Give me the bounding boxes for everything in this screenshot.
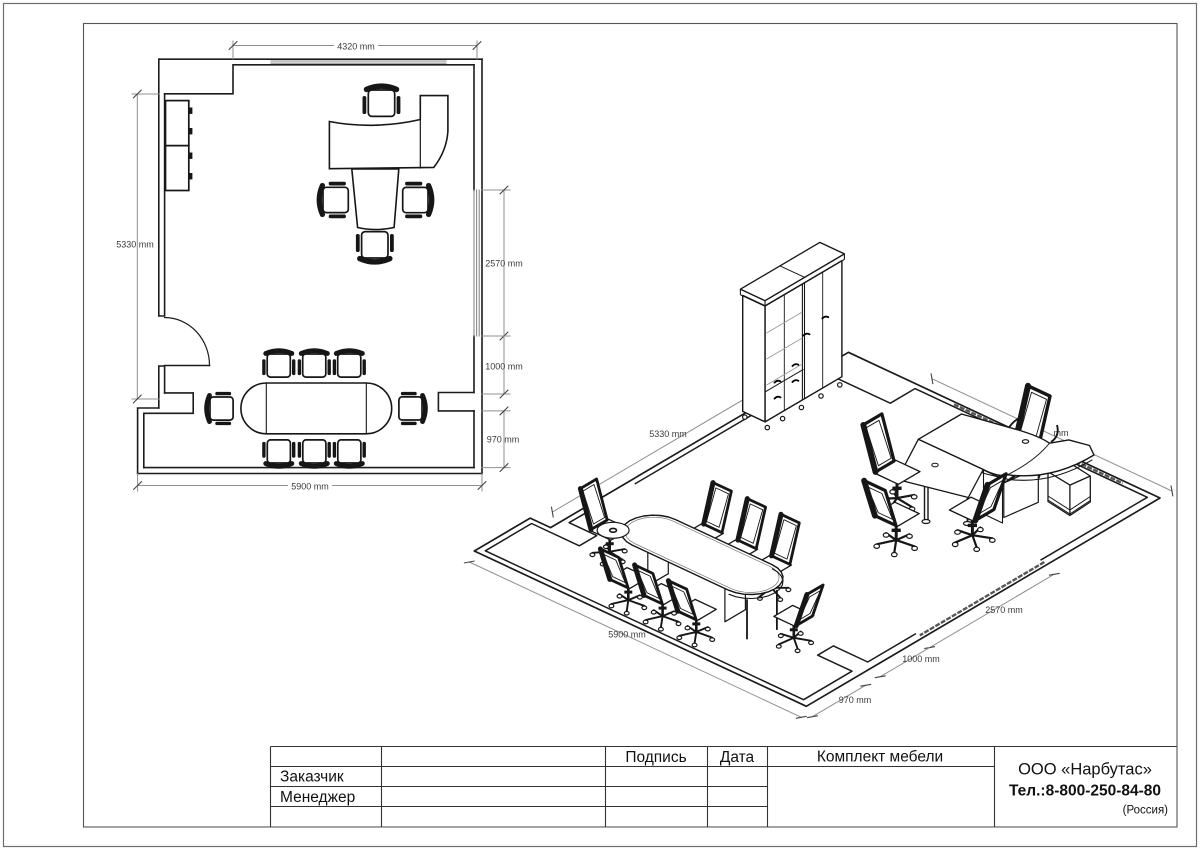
svg-text:ООО «Нарбутас»: ООО «Нарбутас» bbox=[1018, 761, 1152, 779]
svg-text:970 mm: 970 mm bbox=[839, 695, 872, 705]
svg-text:5330 mm: 5330 mm bbox=[116, 240, 154, 250]
svg-text:1000 mm: 1000 mm bbox=[485, 362, 523, 372]
svg-text:Заказчик: Заказчик bbox=[280, 769, 344, 786]
svg-text:4320 mm: 4320 mm bbox=[337, 42, 375, 52]
svg-text:5900 mm: 5900 mm bbox=[291, 482, 329, 492]
svg-text:(Россия): (Россия) bbox=[1123, 805, 1169, 817]
svg-text:5900 mm: 5900 mm bbox=[608, 630, 646, 640]
svg-text:Подпись: Подпись bbox=[625, 749, 686, 766]
svg-text:970 mm: 970 mm bbox=[487, 435, 520, 445]
svg-text:Менеджер: Менеджер bbox=[280, 789, 355, 806]
svg-text:Комплект мебели: Комплект мебели bbox=[817, 749, 943, 766]
svg-text:Тел.:8-800-250-84-80: Тел.:8-800-250-84-80 bbox=[1009, 783, 1161, 800]
svg-text:Дата: Дата bbox=[720, 749, 755, 766]
svg-text:2570 mm: 2570 mm bbox=[985, 605, 1023, 615]
svg-text:2570 mm: 2570 mm bbox=[485, 259, 523, 269]
svg-text:1000 mm: 1000 mm bbox=[902, 654, 940, 664]
svg-text:5330 mm: 5330 mm bbox=[649, 429, 687, 439]
